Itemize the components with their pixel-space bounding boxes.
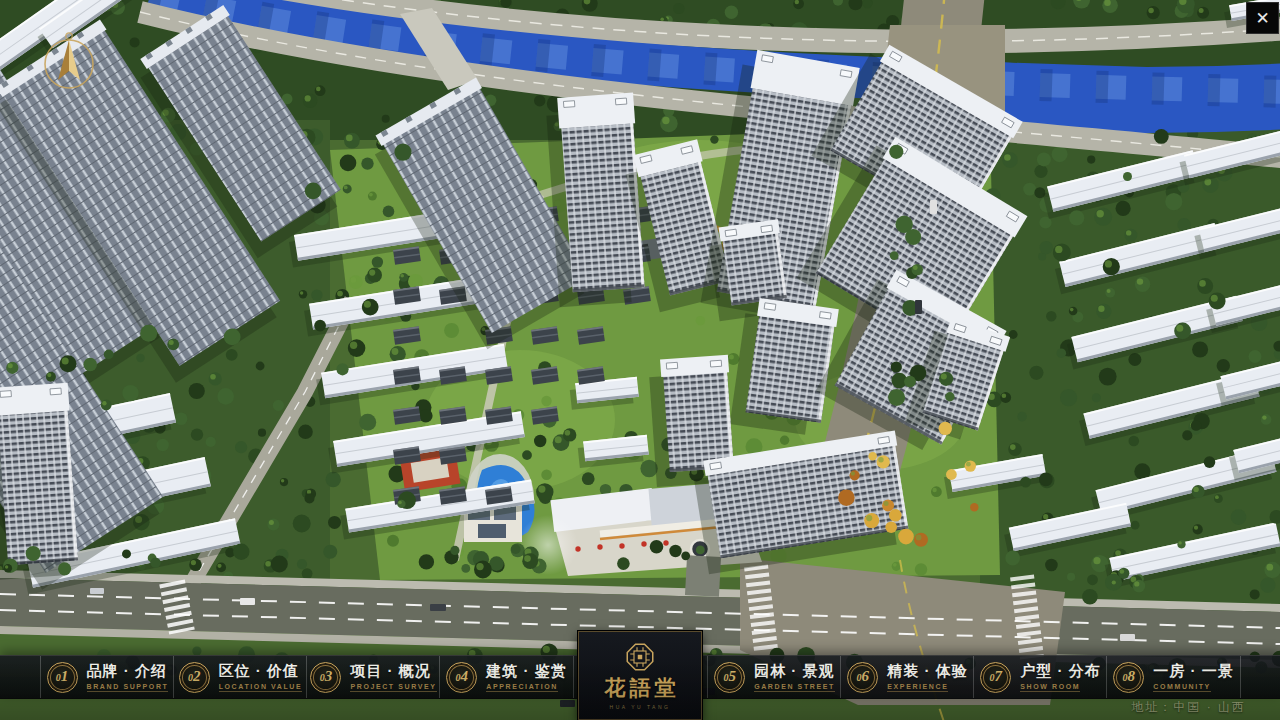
tree — [931, 486, 942, 497]
tree — [889, 509, 902, 522]
nav-label-zh: 建筑 · 鉴赏 — [486, 662, 566, 681]
tree — [1009, 330, 1018, 339]
tree — [1045, 559, 1058, 572]
tree — [104, 350, 114, 360]
tree — [224, 329, 241, 346]
tree — [4, 564, 12, 572]
tree-highlight — [316, 87, 321, 92]
tree — [877, 455, 890, 468]
tree — [136, 354, 144, 362]
tree — [534, 95, 545, 106]
tree — [314, 320, 326, 332]
tree — [1082, 589, 1098, 605]
vehicle — [560, 700, 575, 707]
tree — [1260, 578, 1275, 593]
nav-num: 04 — [456, 662, 469, 692]
tree — [1131, 521, 1140, 530]
nav-label-en: EXPERIENCE — [887, 683, 948, 692]
tree-highlight — [524, 555, 531, 562]
tree — [1214, 494, 1223, 503]
nav-badge: 05 — [714, 662, 745, 693]
tree — [534, 435, 546, 447]
nav-label-en: PROJECT SURVEY — [350, 683, 436, 692]
tree-highlight — [1097, 210, 1104, 217]
tree-highlight — [8, 363, 13, 368]
tree-highlight — [1105, 260, 1112, 267]
tree — [891, 361, 902, 372]
tree — [461, 564, 470, 573]
tree — [915, 563, 927, 575]
tree — [328, 516, 341, 529]
tree — [344, 133, 360, 149]
tree — [1017, 412, 1027, 422]
tree — [1094, 208, 1112, 226]
nav-badge: 01 — [47, 662, 78, 693]
nav-label-en: COMMUNITY — [1153, 683, 1211, 692]
tree — [1116, 201, 1131, 216]
tree — [1192, 485, 1205, 498]
nav-num: 03 — [320, 662, 333, 692]
tree — [1177, 540, 1185, 548]
tree-highlight — [102, 401, 106, 405]
tree — [541, 469, 552, 480]
tree-highlight — [337, 291, 343, 297]
tree-highlight — [1010, 444, 1016, 450]
tree — [1087, 574, 1098, 585]
tree — [1002, 152, 1018, 168]
tree — [348, 339, 366, 357]
tree-highlight — [565, 430, 571, 436]
nav-badge: 03 — [310, 662, 341, 693]
tree — [1067, 573, 1075, 581]
tree — [1204, 456, 1216, 468]
tree — [6, 362, 18, 374]
nav-num: 08 — [1123, 662, 1136, 692]
tree — [419, 554, 434, 569]
compass-icon — [36, 26, 102, 96]
tree — [226, 349, 238, 361]
tree — [617, 557, 630, 570]
tree-highlight — [555, 436, 562, 443]
vehicle — [930, 200, 937, 214]
close-icon: ✕ — [1255, 10, 1269, 27]
tree — [209, 372, 222, 385]
tree — [1008, 443, 1021, 456]
tree — [387, 535, 399, 547]
tree-highlight — [346, 135, 353, 142]
seal-icon — [625, 642, 655, 672]
tree — [1092, 393, 1101, 402]
tree — [1154, 129, 1169, 144]
tree — [122, 549, 131, 558]
nav-item-interior[interactable]: 06 精装 · 体验EXPERIENCE — [840, 656, 974, 698]
tree — [890, 251, 899, 260]
masterplan-3d-view[interactable] — [0, 0, 1280, 720]
tree — [167, 339, 179, 351]
tree — [419, 409, 433, 423]
tree — [256, 362, 265, 371]
tree — [838, 489, 855, 506]
tree-highlight — [1055, 246, 1062, 253]
tree — [889, 145, 903, 159]
tree — [939, 422, 952, 435]
tree — [1005, 551, 1020, 566]
tree — [302, 568, 313, 579]
nav-num: 07 — [990, 662, 1003, 692]
tree-highlight — [1112, 580, 1116, 584]
tree-highlight — [1043, 514, 1048, 519]
tree-highlight — [538, 486, 545, 493]
tree — [1182, 430, 1192, 440]
tree-highlight — [1093, 557, 1100, 564]
nav-label-en: LOCATION VALUE — [219, 683, 303, 692]
tree-highlight — [476, 563, 483, 570]
tree-highlight — [916, 535, 922, 541]
tree — [189, 558, 202, 571]
address-text: 地址：中国 · 山西 — [1131, 699, 1246, 716]
tree — [965, 460, 976, 471]
tree-highlight — [344, 186, 348, 190]
tree — [273, 400, 284, 411]
tree — [305, 183, 322, 200]
tree — [326, 472, 341, 487]
tree-highlight — [1137, 278, 1143, 284]
nav-badge: 06 — [847, 662, 878, 693]
presentation-window: ✕ 01 品牌 · 介绍BRAND SUPPORT 02 区位 · 价值LOCA… — [0, 0, 1280, 720]
tree — [474, 561, 492, 579]
tree — [970, 503, 978, 511]
tree — [1217, 359, 1230, 372]
tree — [1037, 152, 1051, 166]
tree-highlight — [1134, 581, 1139, 586]
tree — [1261, 414, 1272, 425]
tree-highlight — [941, 374, 947, 380]
tree — [1231, 509, 1247, 525]
tree — [383, 206, 395, 218]
tree — [298, 425, 313, 440]
tree-highlight — [712, 650, 717, 655]
tree — [660, 115, 678, 133]
tree — [1069, 210, 1084, 225]
tree-highlight — [169, 340, 174, 345]
vehicle — [90, 588, 104, 594]
tree — [189, 383, 205, 399]
tree-highlight — [364, 301, 371, 308]
tree — [1057, 348, 1067, 358]
tree — [1034, 165, 1047, 178]
logo-home-button[interactable]: 花語堂 HUA YU TANG — [578, 631, 702, 720]
tree — [258, 429, 266, 437]
tree — [946, 469, 957, 480]
tree — [1135, 277, 1150, 292]
tree — [1023, 183, 1036, 196]
tree — [122, 385, 138, 401]
tree — [912, 264, 923, 275]
tree-highlight — [369, 270, 375, 276]
vehicle — [240, 598, 255, 605]
tree — [725, 6, 738, 19]
tree — [293, 515, 311, 533]
tree — [271, 556, 288, 573]
tree — [905, 229, 921, 245]
tree — [359, 414, 376, 431]
tree — [450, 546, 459, 555]
tree — [349, 275, 363, 289]
tree-highlight — [351, 277, 357, 283]
tree — [343, 184, 352, 193]
tree — [60, 355, 77, 372]
tree — [1133, 580, 1146, 593]
tree — [305, 493, 315, 503]
nav-label-en: BRAND SUPPORT — [87, 683, 169, 692]
tree-highlight — [1070, 308, 1074, 312]
tree-highlight — [1126, 230, 1131, 235]
tree — [1193, 524, 1203, 534]
tree — [1069, 307, 1078, 316]
tree — [157, 439, 169, 451]
nav-item-views[interactable]: 08 一房 · 一景COMMUNITY — [1106, 656, 1241, 698]
tree-highlight — [1194, 526, 1198, 530]
tree-highlight — [893, 563, 897, 567]
tree-highlight — [269, 520, 274, 525]
tree-highlight — [1193, 487, 1198, 492]
tree-highlight — [1107, 289, 1111, 293]
nav-label-zh: 区位 · 价值 — [219, 662, 299, 681]
tree — [727, 353, 739, 365]
tree-highlight — [1115, 550, 1121, 556]
tree-highlight — [795, 0, 799, 4]
nav-label-zh: 精装 · 体验 — [887, 662, 967, 681]
tree — [1250, 589, 1260, 599]
tree — [669, 545, 681, 557]
tree — [1147, 6, 1160, 19]
tree — [368, 192, 377, 201]
tree — [267, 518, 279, 530]
tree — [311, 289, 322, 300]
tree — [1249, 350, 1262, 363]
tree — [315, 85, 326, 96]
nav-label-zh: 园林 · 景观 — [754, 662, 834, 681]
nav-item-project[interactable]: 03 项目 · 概况PROJECT SURVEY — [306, 656, 440, 698]
tree-highlight — [660, 17, 664, 21]
nav-label-zh: 品牌 · 介绍 — [87, 662, 167, 681]
project-name-latin: HUA YU TANG — [610, 704, 671, 710]
tree-highlight — [217, 564, 221, 568]
tree-highlight — [913, 265, 918, 270]
tree — [1029, 366, 1043, 380]
tree-highlight — [1098, 306, 1104, 312]
tree-highlight — [1199, 8, 1204, 13]
tree — [1105, 288, 1115, 298]
tree — [394, 144, 411, 161]
tree — [780, 436, 789, 445]
tree — [882, 499, 894, 511]
vehicle — [430, 604, 446, 611]
nav-item-floorplan[interactable]: 07 户型 · 分布SHOW ROOM — [973, 656, 1107, 698]
tree — [582, 472, 595, 485]
nav-item-garden[interactable]: 05 园林 · 景观GARDEN STREET — [707, 656, 841, 698]
tree — [541, 396, 551, 406]
tree-highlight — [300, 291, 303, 294]
tree — [681, 551, 690, 560]
tree — [868, 452, 877, 461]
nav-num: 01 — [56, 662, 69, 692]
tree — [914, 533, 928, 547]
tree — [673, 3, 684, 14]
tree — [206, 437, 216, 447]
nav-label-zh: 项目 · 概况 — [350, 662, 430, 681]
tree — [397, 500, 405, 508]
tree — [1191, 420, 1202, 431]
tree-highlight — [398, 501, 402, 505]
tree — [696, 316, 705, 325]
tree — [140, 325, 157, 342]
tree-highlight — [265, 561, 271, 567]
tree — [522, 450, 532, 460]
tree-highlight — [932, 488, 936, 492]
tree — [888, 389, 905, 406]
tree — [1129, 436, 1140, 447]
tree — [904, 376, 916, 388]
tree — [1192, 342, 1208, 358]
tree-highlight — [191, 560, 196, 565]
tree-highlight — [1148, 8, 1153, 13]
tree — [130, 37, 140, 47]
nav-badge: 02 — [179, 662, 210, 693]
tree — [563, 428, 576, 441]
tree-highlight — [210, 374, 216, 380]
nav-label-en: SHOW ROOM — [1020, 683, 1080, 692]
tree — [1165, 193, 1182, 210]
tree — [299, 290, 307, 298]
tree — [710, 135, 718, 143]
tree — [1052, 146, 1068, 162]
tree-highlight — [369, 193, 373, 197]
tree — [522, 553, 538, 569]
project-name: 花語堂 — [601, 674, 680, 702]
nav-badge: 04 — [446, 662, 477, 693]
tree — [101, 400, 112, 411]
vehicle — [1120, 634, 1135, 641]
tree — [1096, 304, 1111, 319]
tree — [1087, 156, 1095, 164]
nav-label-en: APPRECIATION — [486, 683, 558, 692]
tree-highlight — [966, 462, 971, 467]
nav-badge: 07 — [980, 662, 1011, 693]
nav-badge: 08 — [1113, 662, 1144, 693]
tree-highlight — [392, 348, 399, 355]
tree — [382, 115, 390, 123]
tree-highlight — [1002, 393, 1007, 398]
tree — [650, 540, 664, 554]
tree-highlight — [62, 358, 69, 365]
tree — [850, 470, 860, 480]
nav-item-architecture[interactable]: 04 建筑 · 鉴赏APPRECIATION — [439, 656, 574, 698]
tree — [1264, 562, 1280, 578]
tree — [175, 412, 188, 425]
nav-num: 05 — [723, 662, 736, 692]
tree-highlight — [1176, 325, 1183, 332]
tree-highlight — [1199, 280, 1206, 287]
tree-highlight — [1266, 564, 1273, 571]
tree — [444, 323, 459, 338]
tree-highlight — [543, 646, 550, 653]
tree — [939, 372, 953, 386]
tree — [233, 544, 249, 560]
tree-highlight — [662, 117, 669, 124]
tree — [1046, 311, 1056, 321]
tree — [1040, 241, 1053, 254]
tree — [361, 157, 373, 169]
tree-highlight — [281, 479, 284, 482]
tree — [1123, 172, 1132, 181]
tree — [83, 358, 97, 372]
tree-highlight — [1262, 415, 1266, 419]
tree — [1020, 477, 1031, 488]
tree — [303, 94, 318, 109]
tree-highlight — [851, 472, 855, 476]
tree-highlight — [1211, 295, 1218, 302]
tree — [898, 529, 914, 545]
tree — [1174, 323, 1191, 340]
tree — [372, 256, 383, 267]
tree-highlight — [1215, 495, 1219, 499]
tree — [399, 273, 408, 282]
tree — [1209, 293, 1226, 310]
nav-item-brand[interactable]: 01 品牌 · 介绍BRAND SUPPORT — [40, 656, 174, 698]
tree — [945, 392, 954, 401]
tree — [58, 562, 71, 575]
vehicle — [915, 300, 922, 314]
tree — [1125, 229, 1138, 242]
tree — [46, 372, 56, 382]
close-button[interactable]: ✕ — [1246, 2, 1279, 34]
tree — [1103, 258, 1120, 275]
tree — [640, 460, 657, 477]
tree-highlight — [729, 354, 734, 359]
tree-highlight — [305, 95, 311, 101]
tree — [1099, 368, 1117, 386]
tree-highlight — [400, 274, 404, 278]
tree — [217, 388, 234, 405]
tree — [1060, 389, 1077, 406]
tree — [216, 563, 226, 573]
tree-highlight — [866, 515, 872, 521]
tree-highlight — [1004, 154, 1011, 161]
tree — [280, 478, 288, 486]
nav-label-en: GARDEN STREET — [754, 683, 835, 692]
tree-highlight — [1178, 541, 1181, 544]
tree — [1053, 244, 1071, 262]
tree — [362, 299, 379, 316]
nav-label-zh: 户型 · 分布 — [1020, 662, 1100, 681]
tree — [885, 521, 897, 533]
tree — [323, 545, 337, 559]
nav-item-location[interactable]: 02 区位 · 价值LOCATION VALUE — [173, 656, 307, 698]
tree — [297, 559, 307, 569]
tree — [235, 441, 247, 453]
tree — [1110, 579, 1120, 589]
tree — [1039, 473, 1053, 487]
tree-highlight — [350, 342, 357, 349]
tree — [1118, 568, 1129, 579]
tree — [191, 428, 203, 440]
tree — [536, 483, 553, 500]
tree-highlight — [1120, 569, 1125, 574]
tree — [1197, 7, 1209, 19]
tree-highlight — [5, 565, 8, 568]
tree — [1197, 278, 1213, 294]
